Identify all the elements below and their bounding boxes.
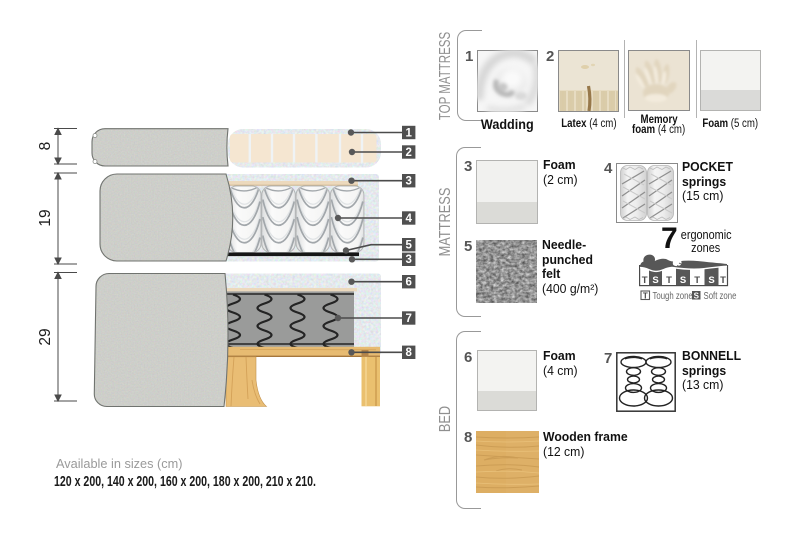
svg-text:3: 3: [405, 176, 411, 188]
svg-text:T: T: [720, 275, 726, 286]
svg-text:Soft zone: Soft zone: [704, 290, 737, 301]
svg-text:Tough zone: Tough zone: [653, 290, 693, 301]
svg-text:2: 2: [405, 147, 411, 159]
svg-text:S: S: [680, 275, 686, 286]
svg-text:S: S: [708, 275, 714, 286]
svg-text:6: 6: [405, 277, 411, 289]
svg-text:8: 8: [37, 142, 54, 151]
svg-text:T: T: [642, 275, 648, 286]
svg-text:3: 3: [405, 254, 411, 266]
svg-text:4: 4: [405, 213, 412, 225]
svg-text:T: T: [643, 292, 648, 301]
svg-text:8: 8: [405, 347, 412, 359]
svg-text:1: 1: [405, 127, 412, 139]
svg-text:7: 7: [405, 313, 411, 325]
svg-text:S: S: [694, 292, 700, 301]
svg-text:5: 5: [405, 240, 412, 252]
svg-text:19: 19: [37, 209, 54, 226]
svg-text:29: 29: [37, 328, 54, 345]
svg-text:T: T: [666, 275, 672, 286]
svg-text:T: T: [694, 275, 700, 286]
svg-text:S: S: [652, 275, 658, 286]
